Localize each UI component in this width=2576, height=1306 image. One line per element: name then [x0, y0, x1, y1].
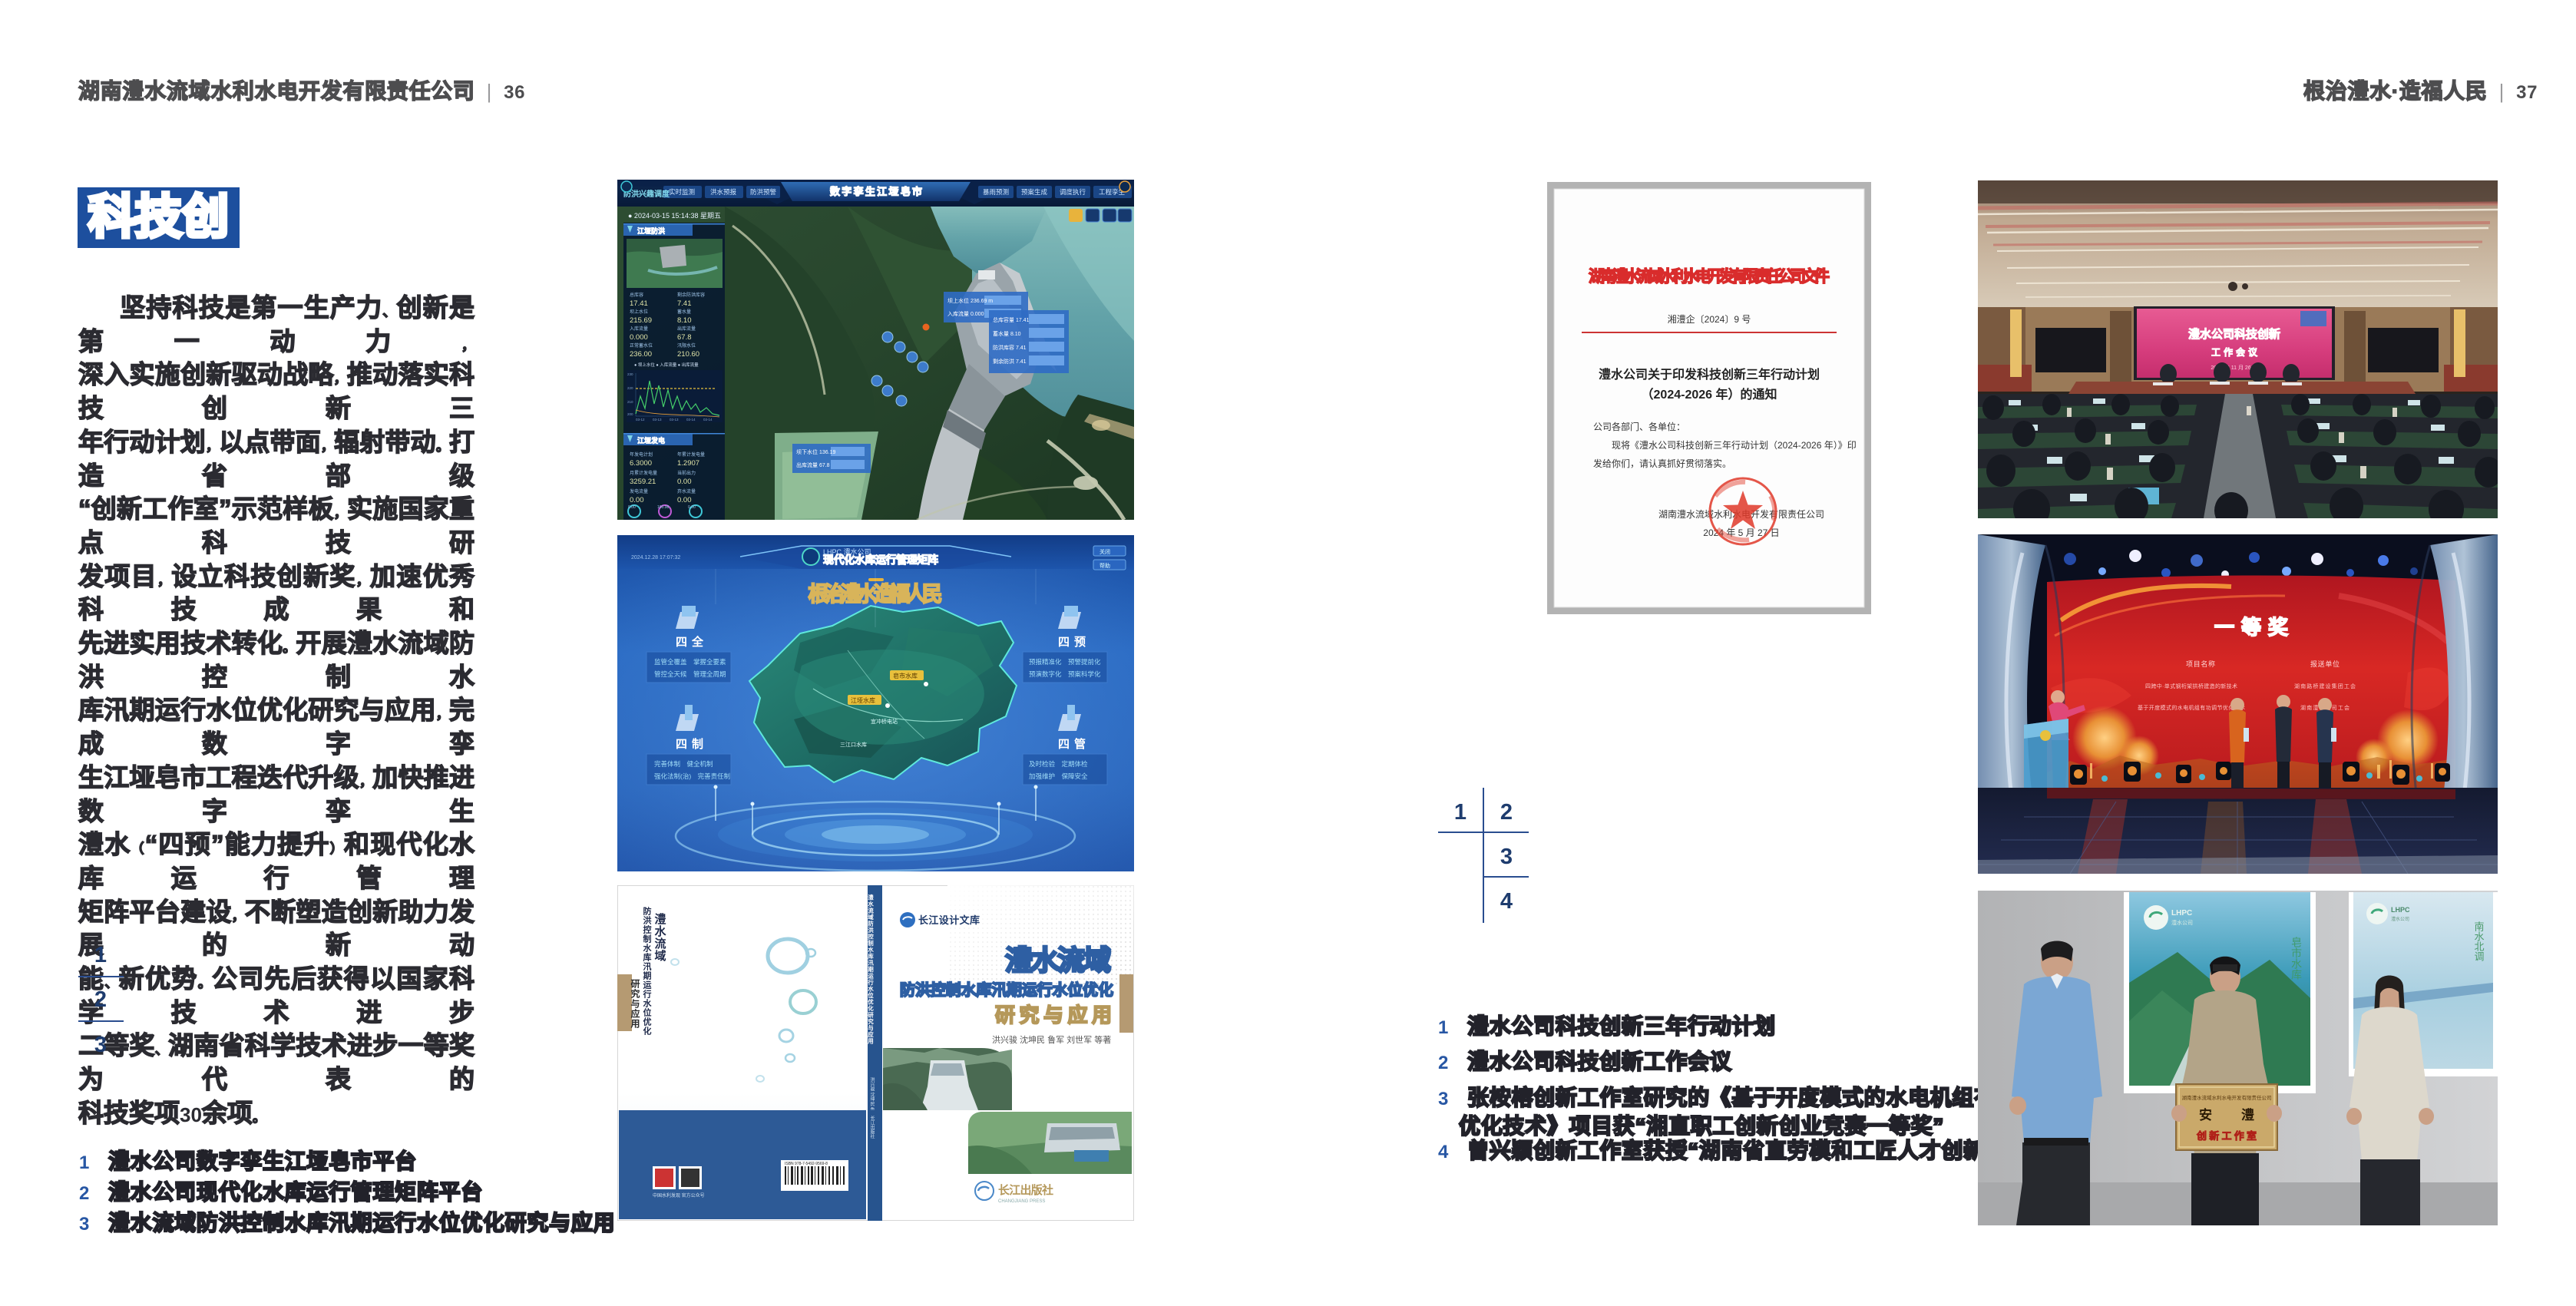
svg-text:长江出版社: 长江出版社 — [998, 1183, 1053, 1197]
svg-text:CHANGJIANG PRESS: CHANGJIANG PRESS — [998, 1199, 1045, 1204]
svg-text:湖南澧水流域水利水电开发有限责任公司: 湖南澧水流域水利水电开发有限责任公司 — [2182, 1094, 2272, 1101]
svg-text:67.8: 67.8 — [677, 333, 692, 342]
svg-text:暴雨预测: 暴雨预测 — [983, 188, 1009, 196]
svg-text:创新工作室: 创新工作室 — [2196, 1130, 2257, 1142]
svg-text:防洪预警: 防洪预警 — [750, 188, 777, 196]
svg-text:报送单位: 报送单位 — [2310, 660, 2340, 668]
svg-text:弃水流量: 弃水流量 — [677, 488, 696, 494]
svg-text:一等奖: 一等奖 — [2214, 616, 2289, 639]
svg-text:LHPC: LHPC — [2391, 906, 2410, 914]
svg-text:0.00: 0.00 — [688, 505, 696, 510]
svg-text:210.60: 210.60 — [677, 350, 699, 359]
svg-text:210: 210 — [627, 400, 633, 404]
svg-text:当前出力: 当前出力 — [677, 470, 696, 476]
svg-text:2024.12.28 17:07:32: 2024.12.28 17:07:32 — [631, 555, 680, 560]
svg-text:月累计发电量: 月累计发电量 — [630, 470, 657, 476]
svg-text:澧水公司关于印发科技创新三年行动计划: 澧水公司关于印发科技创新三年行动计划 — [1599, 367, 1820, 382]
svg-text:出库流量: 出库流量 — [677, 326, 696, 332]
svg-text:坝上水位: 坝上水位 — [630, 309, 648, 315]
svg-text:江垭水库: 江垭水库 — [851, 696, 875, 704]
svg-text:现将《澧水公司科技创新三年行动计划（2024-2026 年）: 现将《澧水公司科技创新三年行动计划（2024-2026 年）》印 — [1612, 439, 1857, 451]
svg-text:防洪控制水库汛期运行水位优化: 防洪控制水库汛期运行水位优化 — [642, 906, 653, 1036]
svg-text:强化法制(治) 完善责任制: 强化法制(治) 完善责任制 — [654, 772, 730, 780]
svg-text:中国水利发现 官方公众号: 中国水利发现 官方公众号 — [653, 1192, 705, 1199]
svg-text:0.000: 0.000 — [630, 333, 648, 342]
svg-text:总库容量 17.41: 总库容量 17.41 — [993, 316, 1030, 323]
svg-text:坝上水位 236.69 m: 坝上水位 236.69 m — [947, 297, 993, 304]
svg-text:发电流量: 发电流量 — [630, 488, 648, 494]
svg-text:皂市水库: 皂市水库 — [893, 672, 918, 679]
svg-text:蓄水量: 蓄水量 — [677, 309, 691, 315]
svg-text:● 坝上水位 ● 入库流量 ● 出库流量: ● 坝上水位 ● 入库流量 ● 出库流量 — [634, 362, 699, 368]
svg-text:帮助: 帮助 — [1100, 562, 1110, 569]
svg-text:皂市水库: 皂市水库 — [2290, 937, 2303, 980]
svg-text:澧水流域: 澧水流域 — [653, 912, 666, 962]
svg-text:0.00: 0.00 — [628, 505, 636, 510]
svg-text:研究与应用: 研究与应用 — [995, 1003, 1112, 1027]
svg-text:长江设计文库: 长江设计文库 — [918, 914, 980, 926]
svg-text:17.41: 17.41 — [630, 299, 648, 308]
svg-text:澧水公司: 澧水公司 — [2171, 919, 2193, 926]
svg-text:1.2907: 1.2907 — [677, 459, 699, 468]
svg-text:洪兴骏 沈坤民 鲁军 刘世军 等著: 洪兴骏 沈坤民 鲁军 刘世军 等著 — [992, 1034, 1111, 1045]
svg-text:8.10: 8.10 — [677, 316, 692, 325]
svg-text:长江出版社: 长江出版社 — [869, 1115, 875, 1139]
svg-text:剩余防洪库容: 剩余防洪库容 — [677, 292, 705, 298]
svg-text:监管全覆盖 掌握全要素: 监管全覆盖 掌握全要素 — [654, 658, 726, 666]
svg-text:正常蓄水位: 正常蓄水位 — [630, 342, 653, 349]
svg-text:预报精准化 预警提前化: 预报精准化 预警提前化 — [1029, 658, 1101, 666]
svg-text:公司各部门、各单位：: 公司各部门、各单位： — [1593, 421, 1685, 432]
svg-text:蓄水量 8.10: 蓄水量 8.10 — [993, 330, 1021, 337]
svg-text:入库流量 0.000: 入库流量 0.000 — [947, 310, 984, 317]
svg-text:防洪控制水库汛期运行水位优化: 防洪控制水库汛期运行水位优化 — [900, 980, 1113, 999]
svg-text:03-13: 03-13 — [653, 418, 662, 422]
svg-text:湖南澧水流域水利水电开发有限责任公司文件: 湖南澧水流域水利水电开发有限责任公司文件 — [1589, 267, 1830, 286]
svg-text:调度执行: 调度执行 — [1060, 188, 1086, 196]
svg-text:年发电计划: 年发电计划 — [630, 451, 653, 458]
svg-text:及时检验 定期体检: 及时检验 定期体检 — [1029, 760, 1088, 768]
svg-text:100.98: 100.98 — [657, 505, 670, 510]
svg-text:入库流量: 入库流量 — [630, 326, 648, 332]
svg-text:关闭: 关闭 — [1100, 548, 1110, 555]
svg-text:220: 220 — [627, 386, 633, 390]
svg-text:南水北调: 南水北调 — [2473, 921, 2485, 961]
svg-text:（2024-2026 年）的通知: （2024-2026 年）的通知 — [1642, 387, 1777, 402]
svg-text:0.00: 0.00 — [630, 496, 644, 504]
svg-text:6.3000: 6.3000 — [630, 459, 652, 468]
svg-text:现代化水库运行管理矩阵: 现代化水库运行管理矩阵 — [823, 554, 938, 566]
svg-text:03-14: 03-14 — [686, 418, 696, 422]
svg-text:0.00: 0.00 — [677, 478, 692, 486]
svg-text:项目名称: 项目名称 — [2186, 660, 2215, 668]
svg-text:剩余防洪 7.41: 剩余防洪 7.41 — [993, 358, 1027, 365]
svg-text:安 澧: 安 澧 — [2199, 1107, 2254, 1122]
svg-text:预演数字化 预案科学化: 预演数字化 预案科学化 — [1029, 670, 1101, 678]
svg-text:防洪库容 7.41: 防洪库容 7.41 — [993, 344, 1027, 351]
svg-text:研究与应用: 研究与应用 — [630, 979, 640, 1029]
svg-text:03-12: 03-12 — [636, 418, 645, 422]
svg-text:澧水公司: 澧水公司 — [2391, 916, 2409, 922]
svg-text:三江口水库: 三江口水库 — [840, 741, 867, 748]
svg-text:200: 200 — [627, 412, 633, 416]
svg-text:澧水流域防洪控制水库汛期运行水位优化研究与应用: 澧水流域防洪控制水库汛期运行水位优化研究与应用 — [867, 894, 874, 1045]
svg-text:实时监测: 实时监测 — [669, 188, 695, 196]
svg-text:湖南路桥建设集团工会: 湖南路桥建设集团工会 — [2294, 683, 2356, 689]
svg-text:完善体制 健全机制: 完善体制 健全机制 — [654, 760, 713, 768]
svg-text:基于开度模式的水电机组有功调节优化技术: 基于开度模式的水电机组有功调节优化技术 — [2138, 704, 2245, 711]
svg-text:3259.21: 3259.21 — [630, 478, 656, 486]
svg-text:230: 230 — [627, 372, 633, 376]
svg-text:发给你们，请认真抓好贯彻落实。: 发给你们，请认真抓好贯彻落实。 — [1593, 458, 1731, 469]
svg-text:江垭发电: 江垭发电 — [637, 436, 665, 445]
svg-text:管控全天候 管理全周期: 管控全天候 管理全周期 — [654, 670, 726, 678]
svg-text:澧水流域: 澧水流域 — [1005, 944, 1111, 976]
svg-text:236.00: 236.00 — [630, 350, 652, 359]
svg-text:宜冲桥电站: 宜冲桥电站 — [871, 718, 898, 725]
svg-text:总库容: 总库容 — [630, 292, 643, 298]
svg-text:湘澧企〔2024〕9 号: 湘澧企〔2024〕9 号 — [1668, 313, 1751, 325]
svg-text:LHPC: LHPC — [2171, 909, 2192, 918]
svg-text:四跨中·单式钢桁架拱桥建造的新技术: 四跨中·单式钢桁架拱桥建造的新技术 — [2145, 683, 2237, 689]
svg-text:● 2024-03-15 15:14:38 星期五: ● 2024-03-15 15:14:38 星期五 — [628, 212, 721, 220]
svg-text:江垭防洪: 江垭防洪 — [637, 226, 665, 235]
svg-text:ISBN 978-7-5492-9569-8: ISBN 978-7-5492-9569-8 — [785, 1162, 828, 1166]
svg-text:加强维护 保障安全: 加强维护 保障安全 — [1029, 772, 1088, 780]
svg-text:洪水预报: 洪水预报 — [710, 188, 737, 196]
svg-text:出库流量 67.8: 出库流量 67.8 — [796, 461, 830, 468]
svg-text:汛限水位: 汛限水位 — [677, 342, 696, 349]
svg-text:澧水公司科技创新: 澧水公司科技创新 — [2188, 327, 2280, 341]
svg-text:03-13: 03-13 — [670, 418, 679, 422]
svg-text:年累计发电量: 年累计发电量 — [677, 451, 705, 458]
svg-text:03-14: 03-14 — [703, 418, 713, 422]
svg-text:7.41: 7.41 — [677, 299, 692, 308]
svg-text:215.69: 215.69 — [630, 316, 652, 325]
svg-text:坝下水位 136.19: 坝下水位 136.19 — [796, 448, 835, 455]
svg-text:0.00: 0.00 — [677, 496, 692, 504]
svg-text:预案生成: 预案生成 — [1021, 188, 1048, 196]
